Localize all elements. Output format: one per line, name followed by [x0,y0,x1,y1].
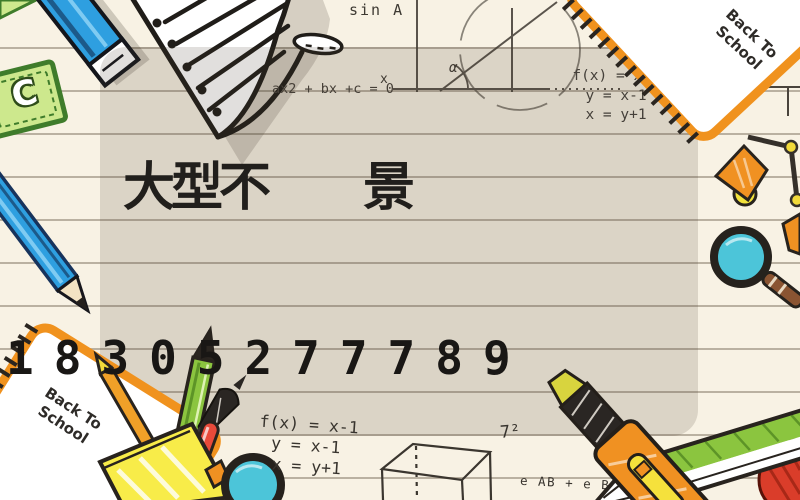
fx-equations-bottom: f(x) = x-1 y = x-1 x = y+1 [256,411,359,481]
formula-seven-squared: 7² [499,421,521,443]
phone-number: 18305277789 [6,331,531,385]
foreground-doodles [0,0,800,500]
banner-stage: sin A 3X2+ ax2 + bx +c = 0 x α f(x) = x-… [0,0,800,500]
cuboid-sketch [382,444,491,500]
